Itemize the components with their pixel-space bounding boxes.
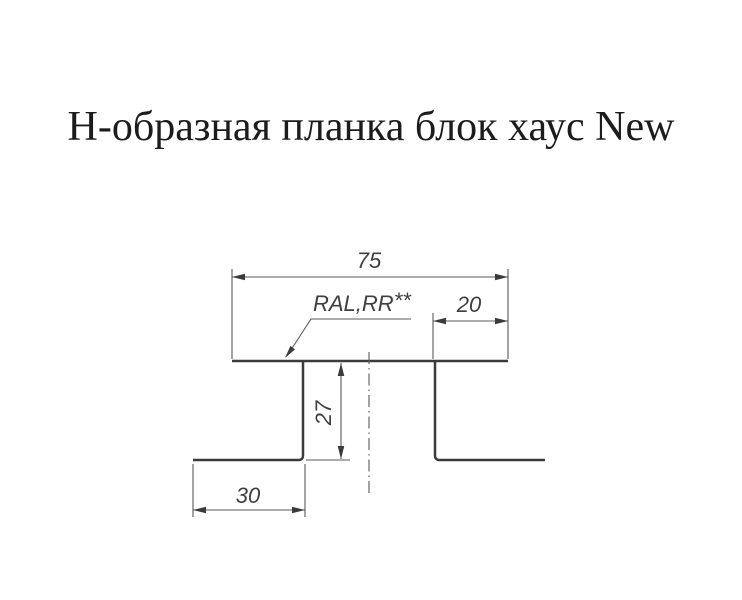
dim-75-value: 75 bbox=[357, 248, 382, 273]
coating-label-text: RAL,RR bbox=[313, 291, 394, 316]
dim-20-value: 20 bbox=[456, 292, 482, 317]
dimension-right-flat: 20 bbox=[433, 292, 508, 359]
dim-30-arrow-right-icon bbox=[292, 507, 305, 514]
dim-75-arrow-left-icon bbox=[232, 274, 245, 281]
dim-30-arrow-left-icon bbox=[193, 507, 206, 514]
dimension-web-height: 27 bbox=[306, 363, 350, 460]
coating-leader: RAL,RR** bbox=[285, 288, 412, 358]
coating-label: RAL,RR** bbox=[313, 288, 412, 316]
dim-20-arrow-left-icon bbox=[433, 318, 446, 325]
drawing-page: Н-образная планка блок хаус New 75 20 bbox=[0, 0, 742, 600]
dim-27-value: 27 bbox=[311, 400, 336, 426]
leader-line bbox=[287, 319, 411, 356]
dim-27-arrow-bottom-icon bbox=[338, 446, 345, 459]
profile-left-web-and-flange-line bbox=[193, 361, 303, 460]
technical-drawing: 75 20 27 30 bbox=[0, 0, 742, 600]
dimension-bottom-flange: 30 bbox=[193, 464, 305, 517]
dim-27-arrow-top-icon bbox=[338, 363, 345, 376]
leader-arrow-icon bbox=[285, 346, 295, 358]
dim-20-arrow-right-icon bbox=[495, 318, 508, 325]
dim-30-value: 30 bbox=[236, 483, 261, 508]
coating-label-stars: ** bbox=[394, 288, 413, 313]
profile-right-web-and-flange-line bbox=[435, 361, 545, 460]
dim-75-arrow-right-icon bbox=[495, 274, 508, 281]
